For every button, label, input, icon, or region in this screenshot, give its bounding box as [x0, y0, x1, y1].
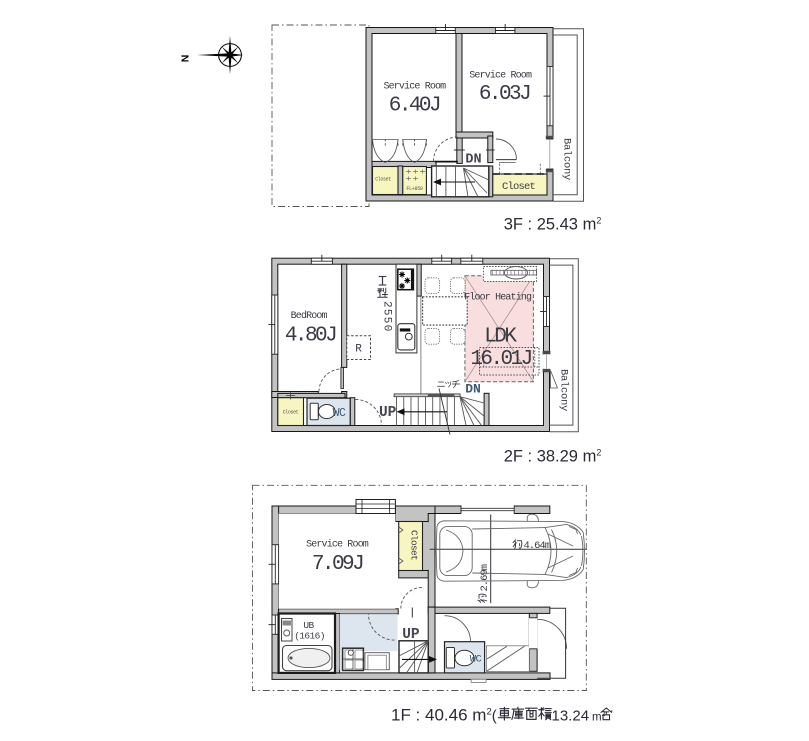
svg-text:DN: DN	[465, 153, 481, 168]
svg-text:WC: WC	[470, 654, 482, 666]
svg-text:LDK: LDK	[484, 325, 517, 348]
svg-text:Service Room: Service Room	[469, 70, 532, 82]
svg-text:1F : 40.46 m2(: 1F : 40.46 m2(	[391, 706, 497, 725]
svg-text:Closet: Closet	[375, 177, 391, 183]
svg-text:13.24: 13.24	[552, 708, 590, 725]
svg-text:6.40J: 6.40J	[389, 95, 440, 118]
svg-text:3F : 25.43 m2: 3F : 25.43 m2	[504, 216, 602, 234]
svg-text:WC: WC	[333, 407, 346, 420]
svg-text:16.01J: 16.01J	[470, 348, 531, 371]
svg-text:Floor Heating: Floor Heating	[464, 292, 532, 304]
svg-text:4.64m: 4.64m	[524, 540, 551, 552]
svg-text:BedRoom: BedRoom	[291, 310, 328, 322]
svg-text:Closet: Closet	[409, 530, 420, 560]
svg-text:N: N	[180, 55, 192, 63]
svg-text:7.09J: 7.09J	[312, 553, 363, 576]
svg-text:Service Room: Service Room	[383, 80, 446, 92]
svg-text:Closet: Closet	[283, 410, 299, 416]
svg-text:2.69m: 2.69m	[479, 564, 491, 591]
svg-text:FL+850: FL+850	[406, 186, 423, 192]
svg-text:(1616): (1616)	[294, 631, 325, 642]
svg-text:UP: UP	[402, 627, 420, 643]
svg-text:UB: UB	[303, 620, 314, 631]
svg-text:6.03J: 6.03J	[479, 83, 530, 106]
svg-text:Service Room: Service Room	[306, 538, 369, 550]
svg-text:DN: DN	[465, 381, 481, 396]
svg-text:UP: UP	[379, 405, 397, 421]
svg-text:R: R	[355, 343, 362, 355]
svg-text:2550: 2550	[381, 301, 393, 333]
svg-text:Balcony: Balcony	[560, 138, 572, 180]
svg-text:4.80J: 4.80J	[285, 325, 336, 348]
svg-text:Closet: Closet	[502, 181, 536, 193]
svg-text:Balcony: Balcony	[557, 369, 569, 411]
svg-text:2F : 38.29 m2: 2F : 38.29 m2	[504, 448, 602, 466]
